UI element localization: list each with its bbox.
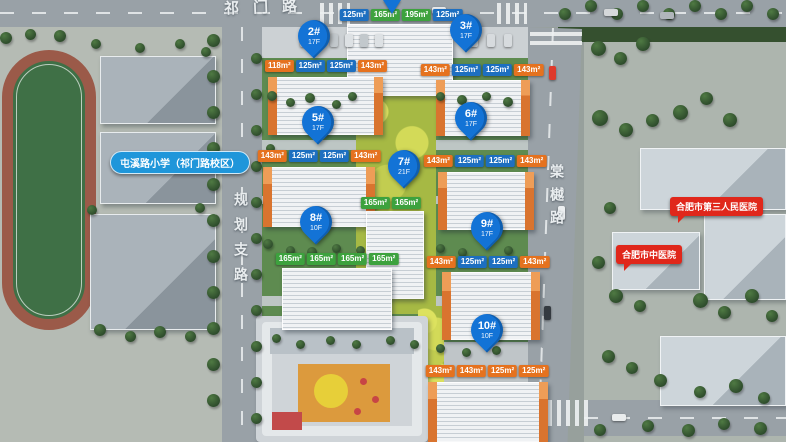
- area-tag: 125m²: [489, 256, 518, 268]
- area-tag: 143m²: [457, 365, 486, 377]
- area-tag: 165m²: [392, 197, 421, 209]
- area-tag: 143m²: [517, 155, 546, 167]
- area-tag: 125m²: [486, 155, 515, 167]
- school-building: [100, 56, 216, 124]
- area-tag: 143m²: [421, 64, 450, 76]
- tree-icon: [626, 362, 638, 374]
- tree-icon: [492, 346, 501, 355]
- area-tag: 165m²: [369, 253, 398, 265]
- building-pin-10: 10#10F: [464, 307, 509, 352]
- building-number: 3#: [460, 21, 472, 32]
- playground-dot: [354, 408, 361, 415]
- tree-icon: [207, 178, 220, 191]
- pin-content: 6#17F: [455, 102, 487, 134]
- tree-icon: [592, 110, 608, 126]
- building-pin-8: 8#10F: [293, 199, 338, 244]
- hospital-label-tcm: 合肥市中医院: [616, 245, 682, 264]
- tree-icon: [718, 418, 730, 430]
- building-pin-6: 6#17F: [448, 95, 493, 140]
- playground-dot: [360, 378, 367, 385]
- car: [487, 34, 495, 47]
- tree-icon: [251, 53, 262, 64]
- tree-icon: [352, 340, 361, 349]
- crosswalk: [548, 400, 592, 426]
- tree-icon: [642, 420, 654, 432]
- building-number: 2#: [308, 27, 320, 38]
- building-pin-7: 7#21F: [381, 143, 426, 188]
- area-tag: 125m²: [452, 64, 481, 76]
- tree-icon: [0, 32, 12, 44]
- tree-icon: [766, 310, 778, 322]
- tree-icon: [185, 331, 196, 342]
- area-tag: 143m²: [351, 150, 380, 162]
- kindergarten: [256, 316, 428, 442]
- tree-icon: [91, 39, 101, 49]
- car: [660, 12, 674, 19]
- site-plan-render: 祁门路 规划支路 棠樾路 屯溪路小学（祁门路校区） 合肥市第三人民医院 合肥市中…: [0, 0, 786, 442]
- tree-icon: [741, 0, 753, 12]
- unit-area-tags-3: 143m²125m²125m²143m²: [421, 64, 544, 76]
- tree-icon: [700, 92, 713, 105]
- tree-icon: [585, 0, 597, 12]
- unit-area-tags-2: 118m²125m²125m²143m²: [265, 60, 387, 72]
- area-tag: 143m²: [520, 256, 549, 268]
- building-floors: 10F: [310, 225, 322, 232]
- kindergarten-playground-circle: [314, 374, 348, 408]
- road-label-tangyue: 棠樾路: [547, 164, 567, 233]
- pin-content: 3#17F: [450, 14, 482, 46]
- area-tag: 125m²: [296, 60, 325, 72]
- pin-content: 5#17F: [302, 106, 334, 138]
- unit-area-tags-8: 165m²165m²165m²165m²: [276, 253, 399, 265]
- tree-icon: [767, 8, 779, 20]
- building-number: 8#: [310, 213, 322, 224]
- tree-icon: [637, 0, 649, 12]
- building-10: [428, 382, 548, 442]
- unit-area-tags-1: 125m²165m²195m²125m²: [340, 9, 463, 21]
- tree-icon: [758, 392, 770, 404]
- tree-icon: [207, 214, 220, 227]
- tree-icon: [592, 256, 605, 269]
- area-tag: 118m²: [265, 60, 294, 72]
- car: [504, 34, 512, 47]
- crosswalk: [497, 3, 527, 24]
- hospital-building: [704, 214, 786, 300]
- building-number: 9#: [481, 219, 493, 230]
- pin-content: 8#10F: [300, 206, 332, 238]
- area-tag: 165m²: [307, 253, 336, 265]
- area-tag: 125m²: [519, 365, 548, 377]
- tree-icon: [326, 336, 335, 345]
- tree-icon: [207, 358, 220, 371]
- unit-area-tags-6: 143m²125m²125m²143m²: [424, 155, 547, 167]
- area-tag: 143m²: [427, 256, 456, 268]
- car: [330, 34, 338, 47]
- building-pin-3: 3#17F: [443, 7, 488, 52]
- tree-icon: [125, 331, 136, 342]
- pin-content: 2#17F: [298, 20, 330, 52]
- tree-icon: [305, 93, 315, 103]
- school-label: 屯溪路小学（祁门路校区）: [110, 151, 250, 174]
- tree-icon: [634, 300, 646, 312]
- tree-icon: [251, 305, 262, 316]
- tree-icon: [559, 8, 571, 20]
- track-lane-lines: [16, 64, 82, 316]
- tree-icon: [715, 8, 727, 20]
- area-tag: 143m²: [358, 60, 387, 72]
- tree-icon: [718, 306, 731, 319]
- tree-icon: [504, 246, 513, 255]
- building-pin-tail-1: [383, 0, 401, 14]
- tree-icon: [602, 350, 615, 363]
- tree-icon: [251, 413, 262, 424]
- playground-dot: [372, 396, 379, 403]
- tree-icon: [410, 340, 419, 349]
- building-number: 5#: [312, 113, 324, 124]
- area-tag: 143m²: [514, 64, 543, 76]
- area-tag: 125m²: [488, 365, 517, 377]
- area-tag: 195m²: [402, 9, 431, 21]
- lane-line: [537, 28, 554, 442]
- tree-icon: [729, 379, 743, 393]
- tree-icon: [654, 374, 667, 387]
- car: [375, 34, 383, 47]
- building-floors: 17F: [481, 231, 493, 238]
- area-tag: 143m²: [424, 155, 453, 167]
- tree-icon: [673, 105, 688, 120]
- area-tag: 165m²: [276, 253, 305, 265]
- tree-icon: [619, 123, 633, 137]
- building-number: 10#: [478, 321, 496, 332]
- tree-icon: [723, 113, 737, 127]
- hospital-label-third-peoples: 合肥市第三人民医院: [670, 197, 763, 216]
- tree-icon: [251, 125, 262, 136]
- car: [604, 9, 618, 16]
- tree-icon: [251, 341, 262, 352]
- tree-icon: [207, 286, 220, 299]
- tree-icon: [251, 89, 262, 100]
- tree-icon: [689, 0, 701, 12]
- tree-icon: [207, 322, 220, 335]
- tree-icon: [693, 293, 708, 308]
- building-pin-9: 9#17F: [464, 205, 509, 250]
- building-floors: 10F: [481, 333, 493, 340]
- area-tag: 143m²: [426, 365, 455, 377]
- road-label-planned-branch: 规划支路: [231, 192, 251, 292]
- tree-icon: [267, 91, 277, 101]
- car: [549, 66, 556, 80]
- tree-icon: [251, 269, 262, 280]
- area-tag: 125m²: [455, 155, 484, 167]
- building-floors: 17F: [465, 121, 477, 128]
- tree-icon: [207, 250, 220, 263]
- tree-icon: [201, 47, 211, 57]
- building-number: 7#: [398, 157, 410, 168]
- tree-icon: [296, 340, 305, 349]
- tree-icon: [263, 239, 273, 249]
- tree-icon: [25, 29, 36, 40]
- building-floors: 17F: [460, 33, 472, 40]
- unit-area-tags-5: 143m²125m²125m²143m²: [258, 150, 381, 162]
- tree-icon: [646, 114, 659, 127]
- tree-icon: [386, 336, 395, 345]
- tree-icon: [207, 34, 220, 47]
- tree-icon: [604, 202, 616, 214]
- tree-icon: [436, 344, 445, 353]
- tree-icon: [154, 326, 166, 338]
- building-floors: 21F: [398, 169, 410, 176]
- unit-area-tags-9: 143m²125m²125m²143m²: [427, 256, 550, 268]
- area-tag: 125m²: [327, 60, 356, 72]
- building-8: [282, 268, 392, 330]
- tree-icon: [594, 424, 606, 436]
- tree-icon: [207, 394, 220, 407]
- tree-icon: [251, 161, 262, 172]
- area-tag: 165m²: [361, 197, 390, 209]
- tree-icon: [682, 424, 695, 437]
- crosswalk: [530, 32, 582, 48]
- pin-content: 10#10F: [471, 314, 503, 346]
- kindergarten-accent: [272, 412, 302, 430]
- area-tag: 125m²: [483, 64, 512, 76]
- tree-icon: [251, 233, 262, 244]
- tree-icon: [462, 348, 471, 357]
- tree-icon: [87, 205, 97, 215]
- area-tag: 125m²: [320, 150, 349, 162]
- area-tag: 143m²: [258, 150, 287, 162]
- tree-icon: [694, 386, 706, 398]
- unit-area-tags-10: 143m²143m²125m²125m²: [426, 365, 549, 377]
- tree-icon: [745, 289, 759, 303]
- unit-area-tags-7: 165m²165m²: [361, 197, 421, 209]
- tree-icon: [348, 92, 357, 101]
- pin-content: 9#17F: [471, 212, 503, 244]
- area-tag: 125m²: [289, 150, 318, 162]
- tree-icon: [482, 92, 491, 101]
- area-tag: 125m²: [340, 9, 369, 21]
- building-floors: 17F: [312, 125, 324, 132]
- tree-icon: [436, 244, 445, 253]
- tree-icon: [286, 98, 295, 107]
- tree-icon: [754, 422, 767, 435]
- area-tag: 125m²: [458, 256, 487, 268]
- tree-icon: [251, 197, 262, 208]
- road-label-qimen: 祁门路: [224, 0, 312, 19]
- tree-icon: [195, 203, 205, 213]
- tree-icon: [251, 377, 262, 388]
- car: [360, 34, 368, 47]
- tree-icon: [636, 37, 650, 51]
- building-number: 6#: [465, 109, 477, 120]
- building-floors: 17F: [308, 39, 320, 46]
- tree-icon: [175, 39, 185, 49]
- tree-icon: [609, 289, 623, 303]
- tree-icon: [272, 334, 281, 343]
- tree-icon: [614, 52, 627, 65]
- running-track: [2, 50, 96, 330]
- tree-icon: [503, 97, 513, 107]
- pin-content: 7#21F: [388, 150, 420, 182]
- tree-icon: [332, 244, 341, 253]
- building-pin-5: 5#17F: [295, 99, 340, 144]
- tree-icon: [591, 41, 606, 56]
- tree-icon: [207, 106, 220, 119]
- area-tag: 165m²: [338, 253, 367, 265]
- school-building: [90, 214, 216, 330]
- tree-icon: [54, 30, 66, 42]
- car: [612, 414, 626, 421]
- tree-icon: [207, 70, 220, 83]
- tree-icon: [436, 92, 445, 101]
- car: [544, 306, 551, 320]
- tree-icon: [94, 324, 106, 336]
- building-pin-2: 2#17F: [291, 13, 336, 58]
- tree-icon: [135, 43, 145, 53]
- car: [345, 34, 353, 47]
